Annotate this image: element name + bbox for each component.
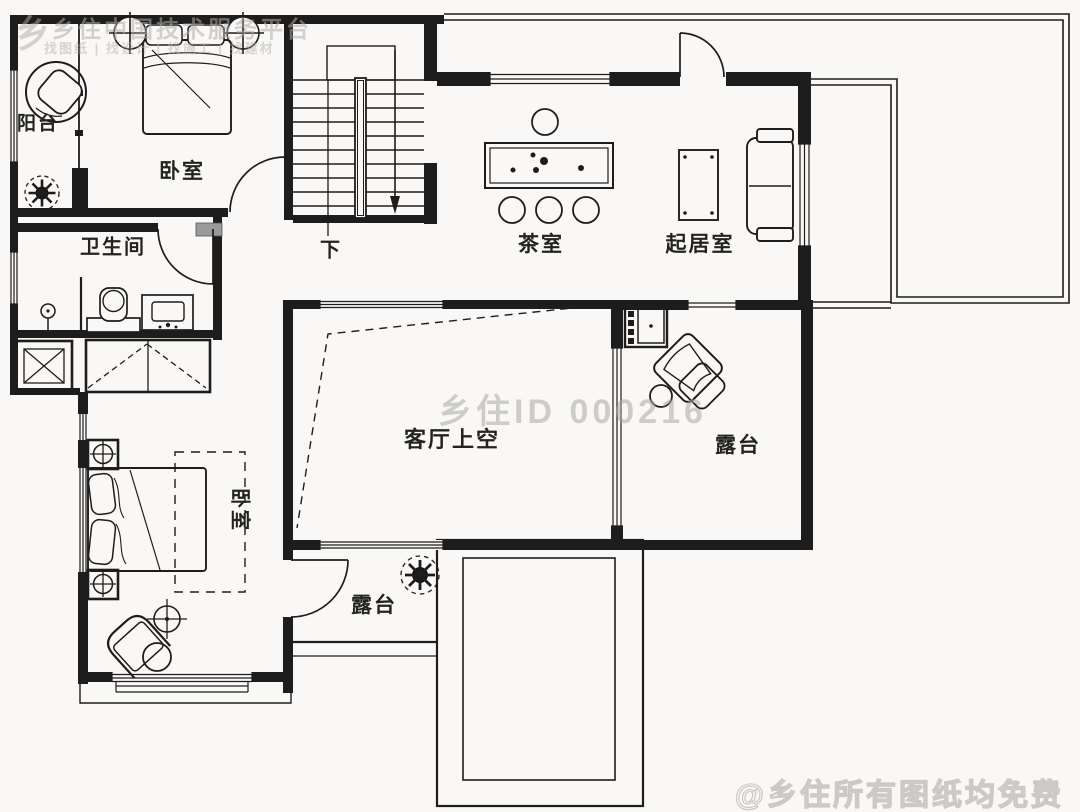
exterior-walls bbox=[10, 15, 813, 693]
round-side-table bbox=[143, 643, 171, 671]
living-room-table bbox=[679, 150, 718, 220]
floorplan-canvas: 乡 乡住中国技术服务平台 找图纸 | 找设计 | 找施工 | 找建材 乡住ID … bbox=[0, 0, 1080, 812]
staircase bbox=[293, 46, 424, 236]
nightstand-lamp-lower bbox=[88, 570, 118, 599]
terrace-plant bbox=[401, 556, 439, 594]
roof-eave-outline bbox=[444, 14, 1069, 308]
sofa bbox=[747, 129, 793, 241]
room-label-tea-room: 茶室 bbox=[518, 228, 564, 258]
void-dashed-outline bbox=[297, 304, 610, 528]
floor-plan-drawing bbox=[0, 0, 1080, 812]
room-label-void: 客厅上空 bbox=[404, 422, 500, 454]
storage-xbox bbox=[16, 341, 72, 391]
room-label-balcony: 阳台 bbox=[17, 109, 59, 136]
room-label-bathroom: 卫生间 bbox=[80, 231, 146, 260]
wardrobe-closet bbox=[86, 340, 210, 392]
room-label-living-room: 起居室 bbox=[666, 228, 735, 258]
stairs-down-label: 下 bbox=[320, 234, 342, 263]
duct-block bbox=[196, 223, 222, 236]
room-label-bedroom-bottom: 卧室 bbox=[228, 488, 257, 532]
room-label-terrace-right: 露台 bbox=[715, 429, 761, 459]
toilet bbox=[87, 288, 140, 332]
room-label-terrace-bottom: 露台 bbox=[351, 589, 397, 619]
bed-top-bedroom bbox=[143, 25, 231, 134]
floor-drain bbox=[41, 304, 55, 330]
balcony-plant bbox=[25, 176, 59, 210]
vanity-sink bbox=[142, 295, 193, 330]
tea-table-set bbox=[485, 109, 613, 223]
nightstand-lamp-upper bbox=[88, 440, 118, 469]
bed-bottom-bedroom bbox=[88, 468, 206, 571]
ac-cabinet bbox=[625, 304, 667, 347]
room-label-bedroom-top: 卧室 bbox=[159, 155, 205, 185]
